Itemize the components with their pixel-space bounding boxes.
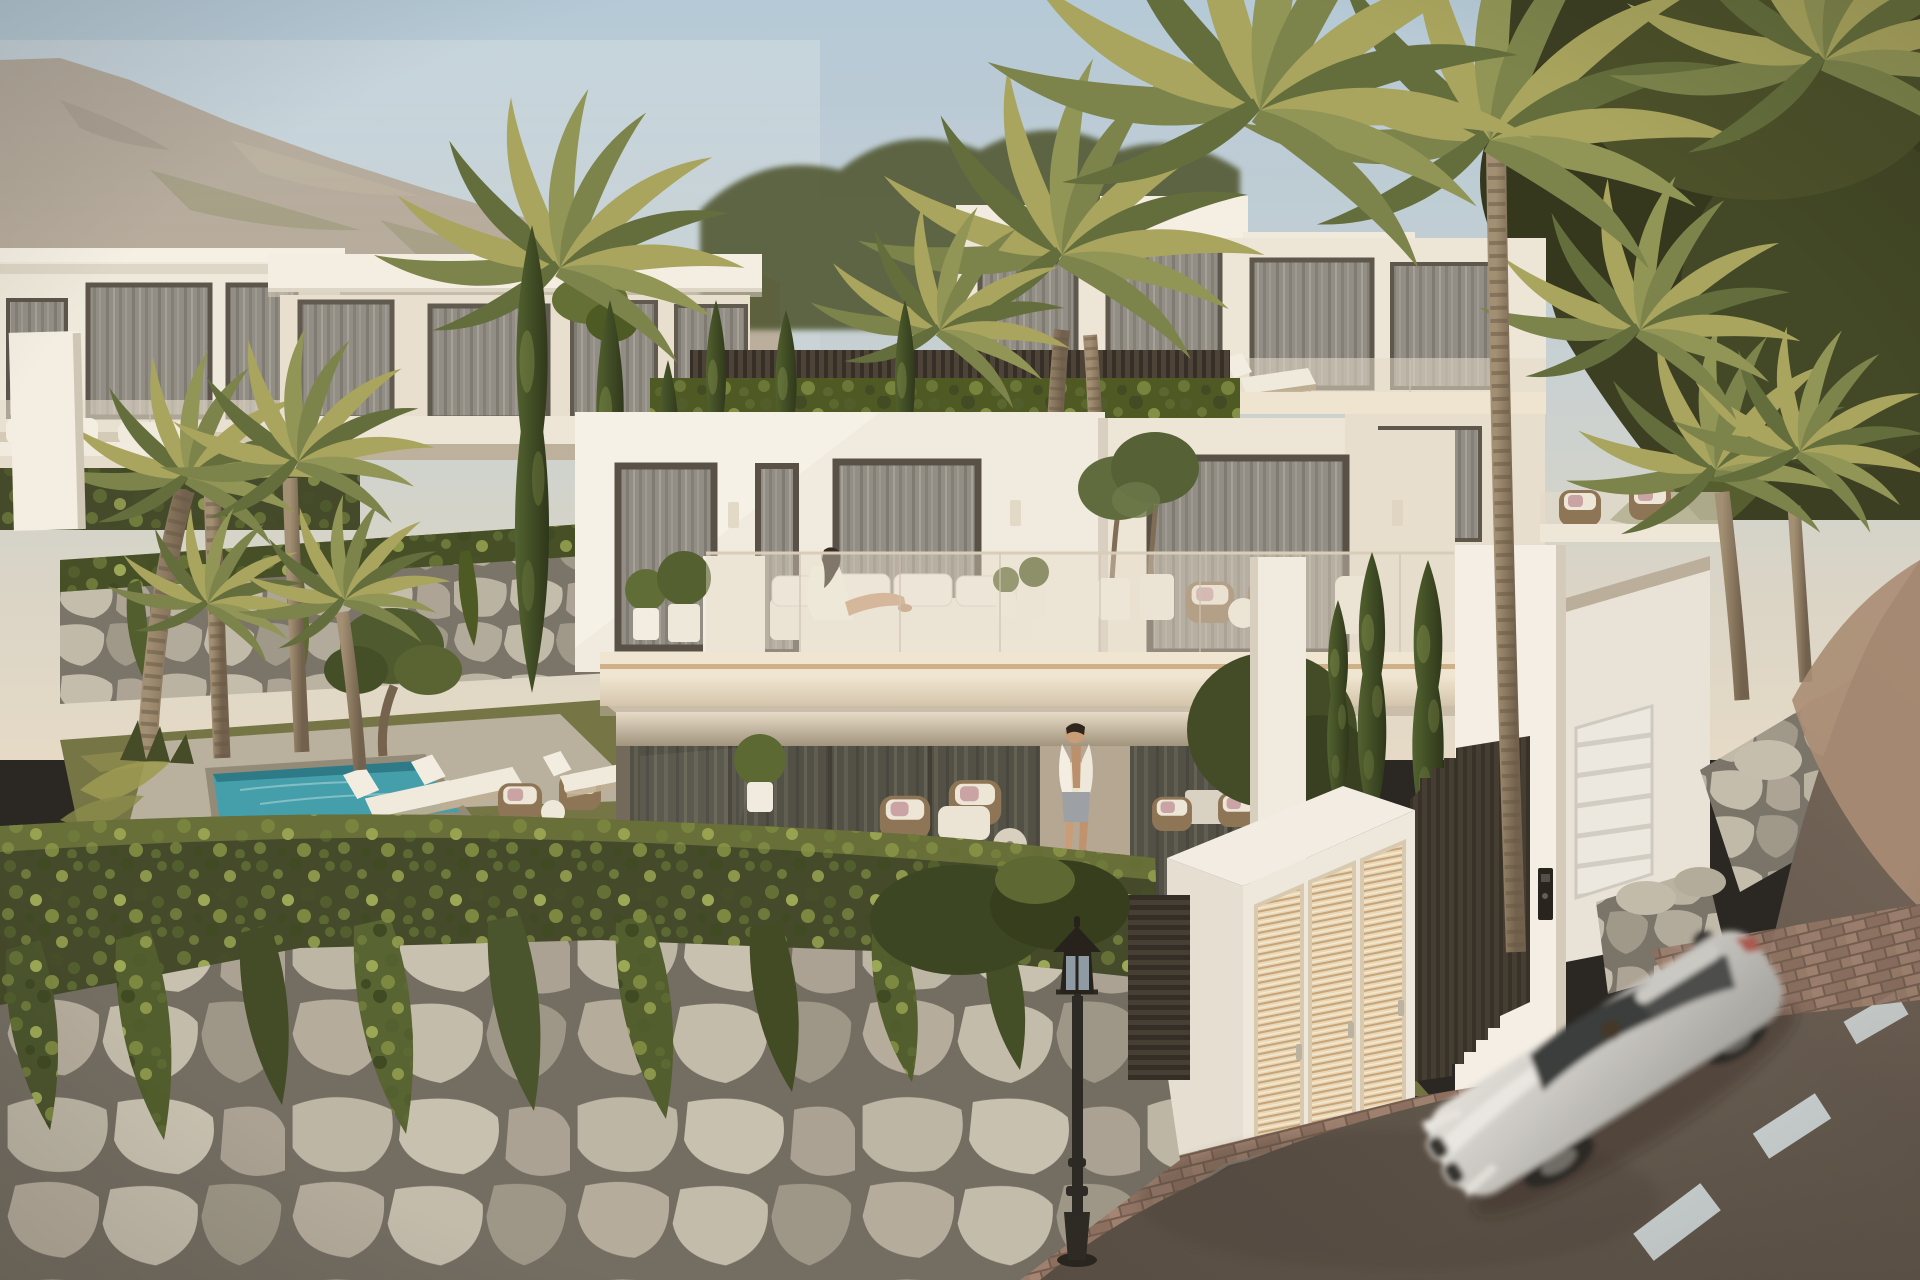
- scene-svg: [0, 0, 1920, 1280]
- render-canvas: [0, 0, 1920, 1280]
- vignette: [0, 0, 1920, 1280]
